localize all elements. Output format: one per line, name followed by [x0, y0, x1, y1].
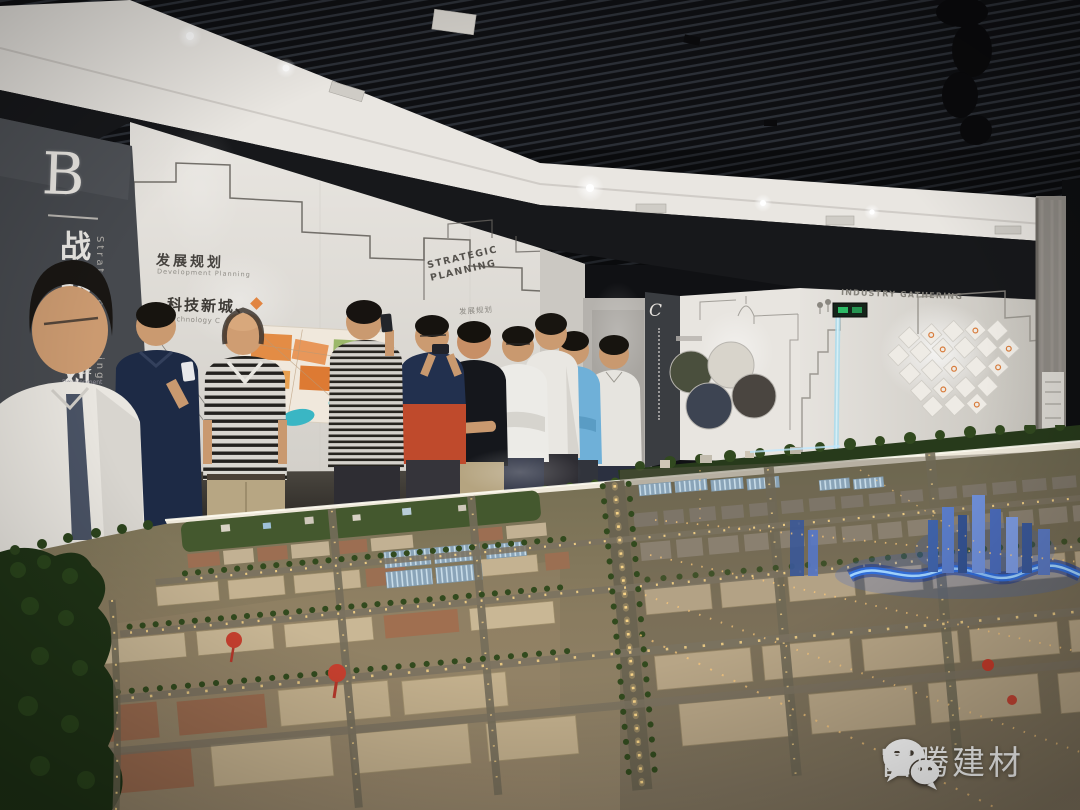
panel-b-item-en: Development — [62, 379, 152, 386]
exit-sign — [833, 303, 867, 317]
panel-b-item: 发展 Development — [62, 358, 152, 386]
masterplan-map-graphic — [235, 324, 392, 434]
panel-b-letter: B — [41, 139, 86, 208]
panel-c-letter: C — [649, 301, 662, 321]
watermark: 富腾建材 — [880, 736, 1024, 784]
exhibition-hall-photo: B 战略规划 Strategic Planning 发展 Development… — [0, 0, 1080, 810]
panel-b-item-en: Development — [62, 411, 152, 418]
panel-b-item-cn: 发展 — [62, 390, 152, 410]
strategic-sub-label: 发展规划 — [459, 304, 494, 317]
watermark-brand: 富腾建材 — [880, 736, 1024, 784]
wall-line-cn: 科技新城、 — [167, 294, 253, 318]
panel-b-title-en: Strategic Planning — [94, 236, 105, 451]
panel-b-item-cn: 发展 — [62, 358, 152, 378]
panel-c-vertical-text — [658, 328, 660, 420]
panel-b-item: 发展 Development — [62, 390, 152, 418]
